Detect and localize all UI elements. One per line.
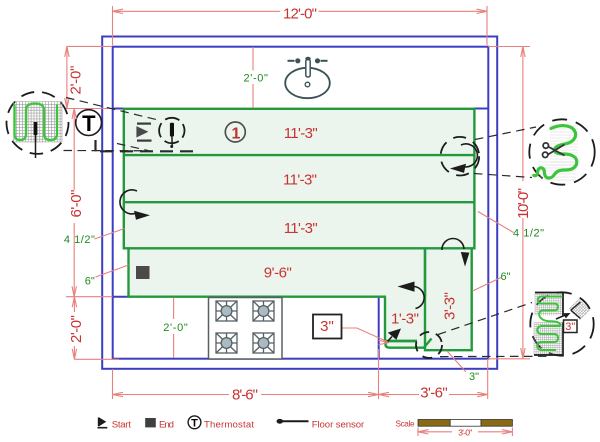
svg-text:3'-3": 3'-3" — [442, 292, 459, 320]
svg-text:Start: Start — [112, 419, 132, 430]
svg-text:4 1/2": 4 1/2" — [513, 228, 544, 240]
svg-text:1: 1 — [232, 126, 241, 143]
svg-text:Thermostat: Thermostat — [204, 419, 254, 430]
svg-text:End: End — [159, 419, 174, 430]
svg-text:T: T — [82, 111, 96, 136]
svg-text:6": 6" — [85, 275, 95, 287]
svg-text:6'-0": 6'-0" — [68, 190, 85, 218]
svg-text:Scale: Scale — [396, 419, 415, 428]
svg-text:4 1/2": 4 1/2" — [64, 234, 95, 246]
svg-text:6": 6" — [500, 271, 510, 283]
svg-text:1'-3": 1'-3" — [391, 311, 419, 328]
svg-text:2'-0": 2'-0" — [68, 66, 85, 95]
svg-text:3'-6": 3'-6" — [420, 385, 448, 402]
svg-text:12'-0": 12'-0" — [283, 5, 317, 22]
svg-text:8'-6": 8'-6" — [232, 387, 258, 404]
svg-text:11'-3": 11'-3" — [284, 125, 318, 142]
svg-text:3": 3" — [565, 321, 575, 333]
svg-text:3'-0": 3'-0" — [458, 427, 472, 437]
svg-text:T: T — [191, 418, 198, 430]
svg-text:10'-0": 10'-0" — [515, 188, 532, 219]
svg-text:2'-0": 2'-0" — [163, 322, 188, 334]
svg-text:Floor sensor: Floor sensor — [312, 419, 365, 430]
svg-text:3": 3" — [469, 371, 479, 383]
svg-text:11'-3": 11'-3" — [284, 220, 318, 237]
svg-text:2'-0": 2'-0" — [243, 72, 268, 84]
svg-text:9'-6": 9'-6" — [264, 264, 292, 281]
svg-text:3": 3" — [320, 318, 334, 335]
svg-text:2'-0": 2'-0" — [68, 315, 85, 343]
svg-text:11'-3": 11'-3" — [283, 172, 317, 189]
